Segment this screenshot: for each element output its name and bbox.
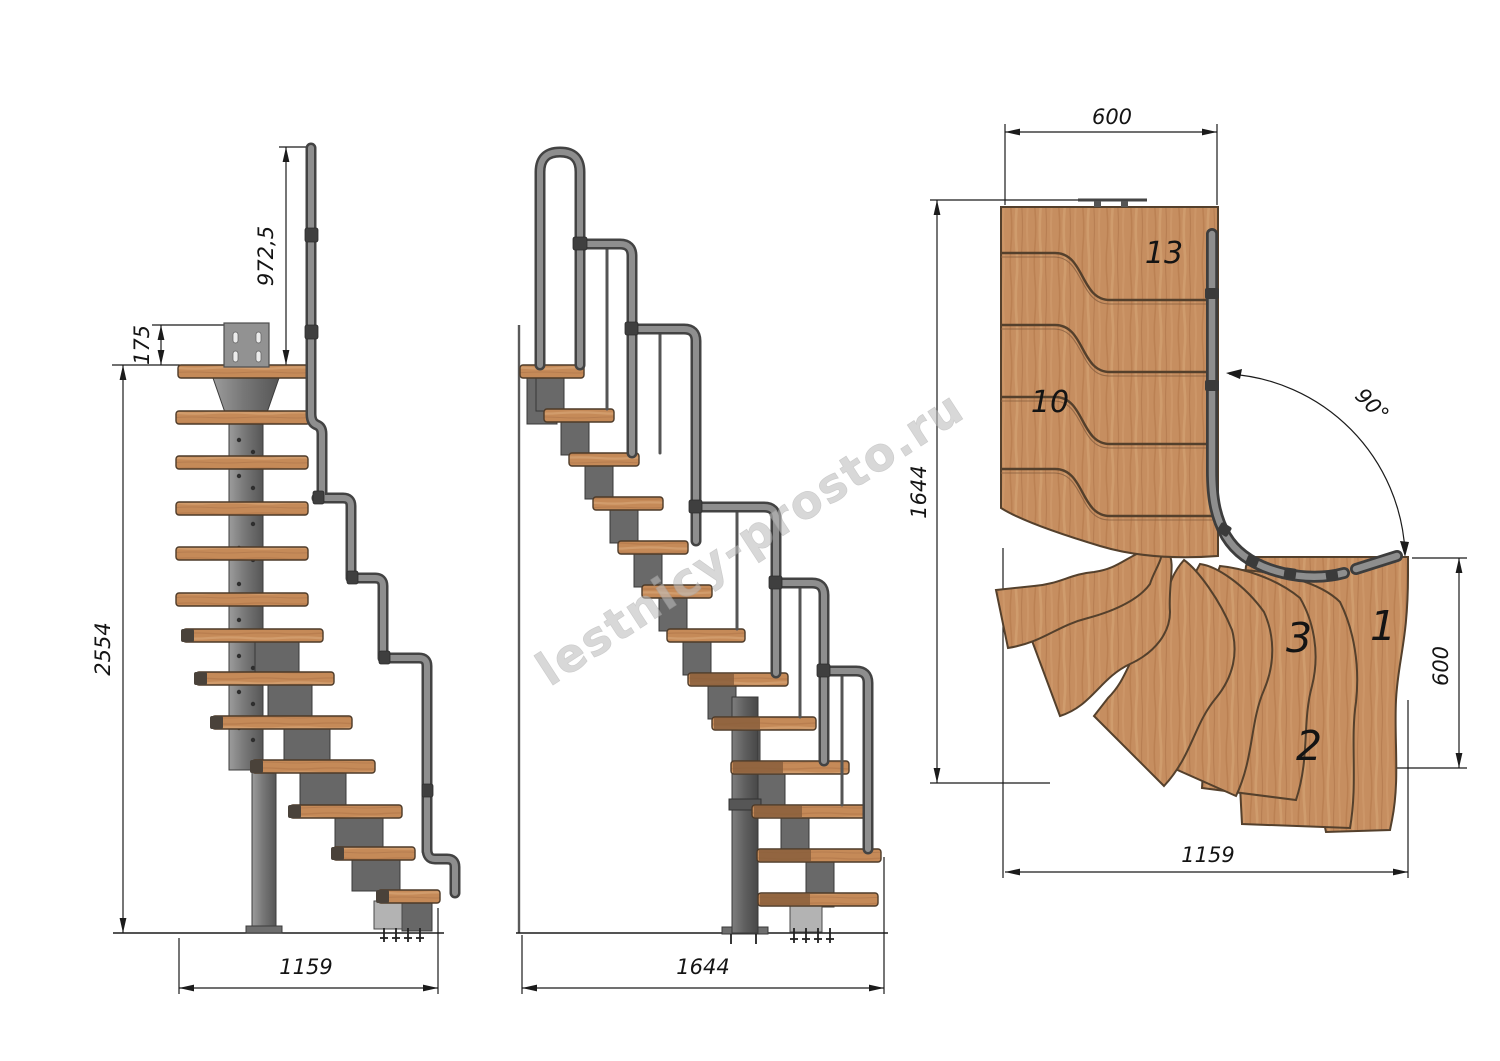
front-dim-bracket-offset-label: 175 [130,325,154,365]
plan-arc-arrow-top [1226,369,1242,379]
plan-straight-flight [1001,207,1218,557]
plan-wall-bracket [1078,200,1147,207]
front-treads [176,365,440,903]
drawing-page: 972,5 175 2554 1159 [0,0,1500,1061]
plan-dim-height-label: 1644 [907,465,931,518]
plan-step-label-1: 1 [1370,602,1396,650]
front-dim-width-label: 1159 [279,955,332,979]
front-dim-total-height-label: 2554 [91,622,115,675]
side-dim-length-label: 1644 [676,955,729,979]
plan-step-label-3: 3 [1286,614,1312,662]
plan-step-label-13: 13 [1145,236,1183,271]
plan-dim-exit-width-label: 600 [1429,646,1453,686]
plan-dim-top-width-label: 600 [1092,105,1132,129]
front-wall-bracket [224,323,269,367]
plan-dim-angle-label: 90° [1350,383,1393,426]
plan-fan-treads [996,548,1408,832]
plan-step-label-10: 10 [1031,385,1069,420]
front-dim-handrail-height-label: 972,5 [254,226,278,286]
plan-step-label-2: 2 [1296,722,1322,770]
plan-dim-bottom-width-label: 1159 [1181,843,1234,867]
staircase-drawing: 972,5 175 2554 1159 [0,0,1500,1061]
plan-view: 600 1644 90° 600 1159 13 10 3 1 2 [907,105,1467,878]
watermark-text: lestnicy-prosto.ru [526,380,973,697]
front-elevation-view: 972,5 175 2554 1159 [91,147,455,994]
side-base-module [790,903,822,932]
